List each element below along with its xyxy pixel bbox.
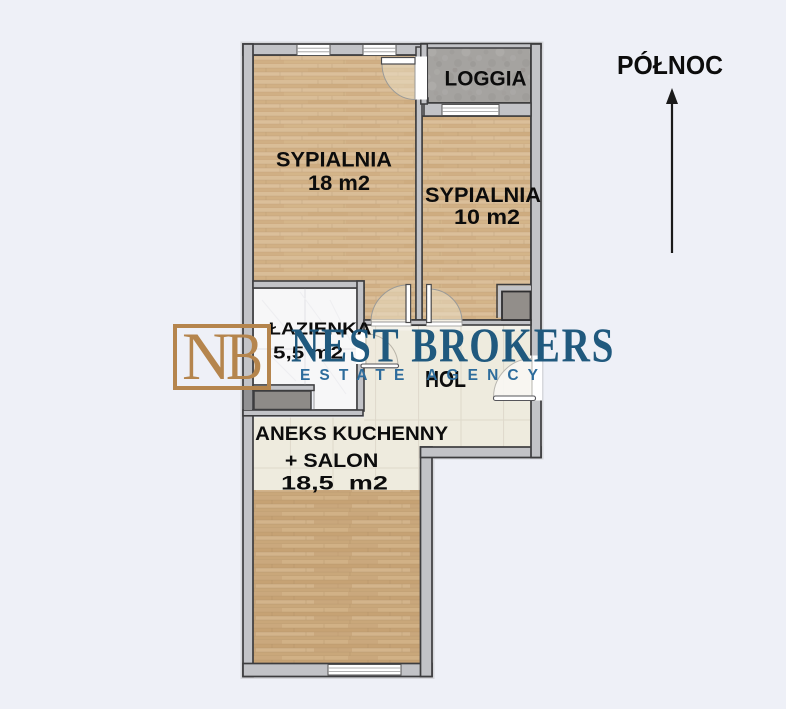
svg-text:PÓŁNOC: PÓŁNOC [617,50,723,80]
svg-text:18,5 m2: 18,5 m2 [281,473,388,495]
svg-text:NEST BROKERS: NEST BROKERS [291,317,615,372]
svg-text:18 m2: 18 m2 [308,172,370,195]
svg-text:SYPIALNIA: SYPIALNIA [425,184,541,207]
svg-text:N: N [182,318,231,394]
svg-text:SYPIALNIA: SYPIALNIA [276,149,392,172]
svg-text:10 m2: 10 m2 [454,206,520,229]
svg-text:ANEKS KUCHENNY: ANEKS KUCHENNY [255,423,448,445]
svg-text:+ SALON: + SALON [285,450,379,472]
svg-text:LOGGIA: LOGGIA [445,68,527,91]
svg-text:B: B [226,318,263,394]
